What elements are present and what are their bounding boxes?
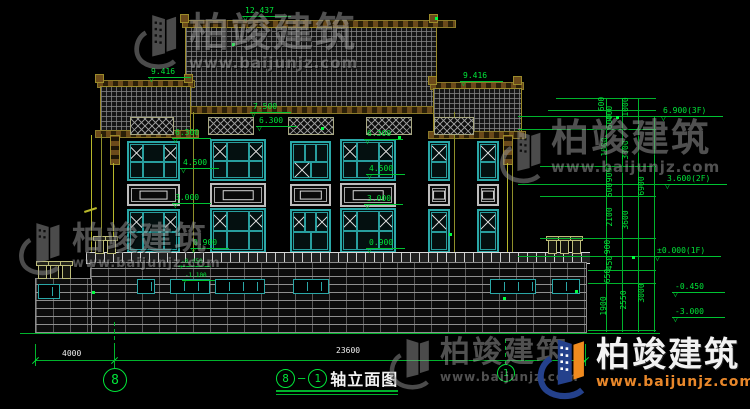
elevation-marker: 6.900(3F)▽ bbox=[660, 107, 723, 117]
elevation-marker: 4.500▽ bbox=[180, 159, 219, 169]
dimension-label: 1800 bbox=[601, 137, 609, 156]
grip-dot bbox=[435, 17, 438, 20]
elevation-marker: 0.900▽ bbox=[366, 239, 405, 249]
grip-dot bbox=[92, 291, 95, 294]
dimension-label: 3000 bbox=[638, 283, 646, 302]
elevation-marker: -0.450▽ bbox=[178, 259, 211, 267]
dimension-label: 6900 bbox=[638, 176, 646, 195]
cad-elevation-drawing: 8 1 8 — 1 轴立面图 12.437▽9.416▽9.416▽7.500▽… bbox=[0, 0, 750, 409]
grip-dot bbox=[632, 256, 635, 259]
dimension-label: 600 bbox=[606, 183, 614, 197]
elevation-marker: 3.000▽ bbox=[172, 194, 211, 204]
grip-dot bbox=[503, 297, 506, 300]
grip-dot bbox=[232, 43, 235, 46]
grip-dot bbox=[616, 116, 619, 119]
dimension-label: 4000 bbox=[62, 350, 81, 358]
elevation-marker: 0.900▽ bbox=[190, 239, 229, 249]
elevation-marker: 6.300▽ bbox=[172, 129, 211, 139]
elevation-marker: 7.500▽ bbox=[250, 103, 291, 113]
dimension-label: 900 bbox=[606, 168, 614, 182]
elevation-marker: ±0.000(1F)▽ bbox=[654, 247, 721, 257]
elevation-marker: -1.100▽ bbox=[182, 273, 215, 281]
elevation-marker: 3.600(2F)▽ bbox=[664, 175, 727, 185]
elevation-marker: 9.416▽ bbox=[460, 72, 503, 82]
dimension-label: 1900 bbox=[600, 296, 608, 315]
grip-dot bbox=[321, 127, 324, 130]
grip-dot bbox=[398, 136, 401, 139]
dimension-label: 900 bbox=[604, 240, 612, 254]
grip-dot bbox=[449, 233, 452, 236]
dimension-label: 650 bbox=[604, 269, 612, 283]
dimension-label: 3600 bbox=[622, 210, 630, 229]
elevation-marker: 9.416▽ bbox=[148, 68, 191, 78]
elevation-marker: 4.500▽ bbox=[366, 165, 405, 175]
dimension-label: 23600 bbox=[336, 347, 360, 355]
dimension-label: 3300 bbox=[622, 140, 630, 159]
dimension-labels-layer: 12.437▽9.416▽9.416▽7.500▽6.300▽6.300▽4.5… bbox=[0, 0, 750, 409]
elevation-marker: 12.437▽ bbox=[242, 7, 291, 17]
grip-dot bbox=[575, 290, 578, 293]
dimension-label: 600 bbox=[606, 115, 614, 129]
elevation-marker: 3.000▽ bbox=[364, 195, 403, 205]
elevation-marker: 6.300▽ bbox=[256, 117, 297, 127]
dimension-label: 2550 bbox=[620, 290, 628, 309]
elevation-marker: -0.450▽ bbox=[672, 283, 725, 293]
dimension-label: 2100 bbox=[606, 207, 614, 226]
elevation-marker: -3.000▽ bbox=[672, 308, 725, 318]
dimension-label: 1000 bbox=[622, 97, 630, 116]
